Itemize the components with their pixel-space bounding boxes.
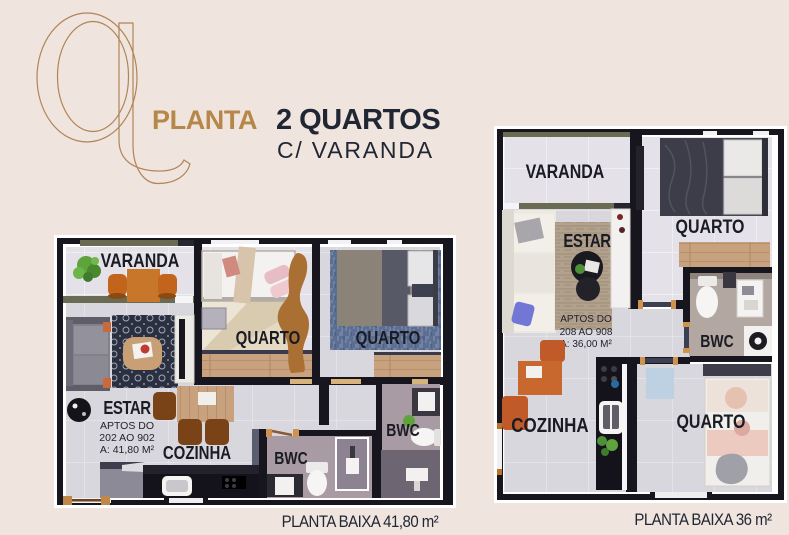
svg-text:COZINHA: COZINHA — [511, 415, 589, 438]
svg-text:QUARTO: QUARTO — [676, 215, 745, 237]
svg-text:208 AO 908: 208 AO 908 — [560, 327, 613, 338]
svg-text:QUARTO: QUARTO — [236, 328, 301, 349]
svg-text:C/ VARANDA: C/ VARANDA — [277, 137, 434, 163]
svg-text:BWC: BWC — [274, 450, 307, 469]
svg-text:COZINHA: COZINHA — [163, 443, 231, 464]
svg-text:A: 41,80 M²: A: 41,80 M² — [100, 444, 155, 456]
svg-text:QUARTO: QUARTO — [677, 411, 746, 433]
svg-text:APTOS DO: APTOS DO — [100, 420, 154, 432]
svg-text:VARANDA: VARANDA — [101, 249, 180, 271]
svg-text:ESTAR: ESTAR — [103, 398, 151, 419]
svg-text:202 AO 902: 202 AO 902 — [99, 432, 155, 444]
svg-text:2 QUARTOS: 2 QUARTOS — [276, 104, 440, 136]
svg-text:BWC: BWC — [386, 422, 419, 441]
svg-text:VARANDA: VARANDA — [526, 160, 605, 182]
svg-text:PLANTA BAIXA 41,80 m²: PLANTA BAIXA 41,80 m² — [282, 513, 439, 531]
svg-text:APTOS DO: APTOS DO — [560, 314, 612, 325]
svg-text:PLANTA: PLANTA — [152, 105, 257, 135]
svg-text:QUARTO: QUARTO — [356, 328, 421, 349]
svg-text:A: 36,00 M²: A: 36,00 M² — [560, 339, 612, 350]
svg-text:BWC: BWC — [700, 333, 733, 352]
svg-text:PLANTA BAIXA 36 m²: PLANTA BAIXA 36 m² — [634, 511, 771, 529]
svg-text:ESTAR: ESTAR — [563, 231, 611, 252]
